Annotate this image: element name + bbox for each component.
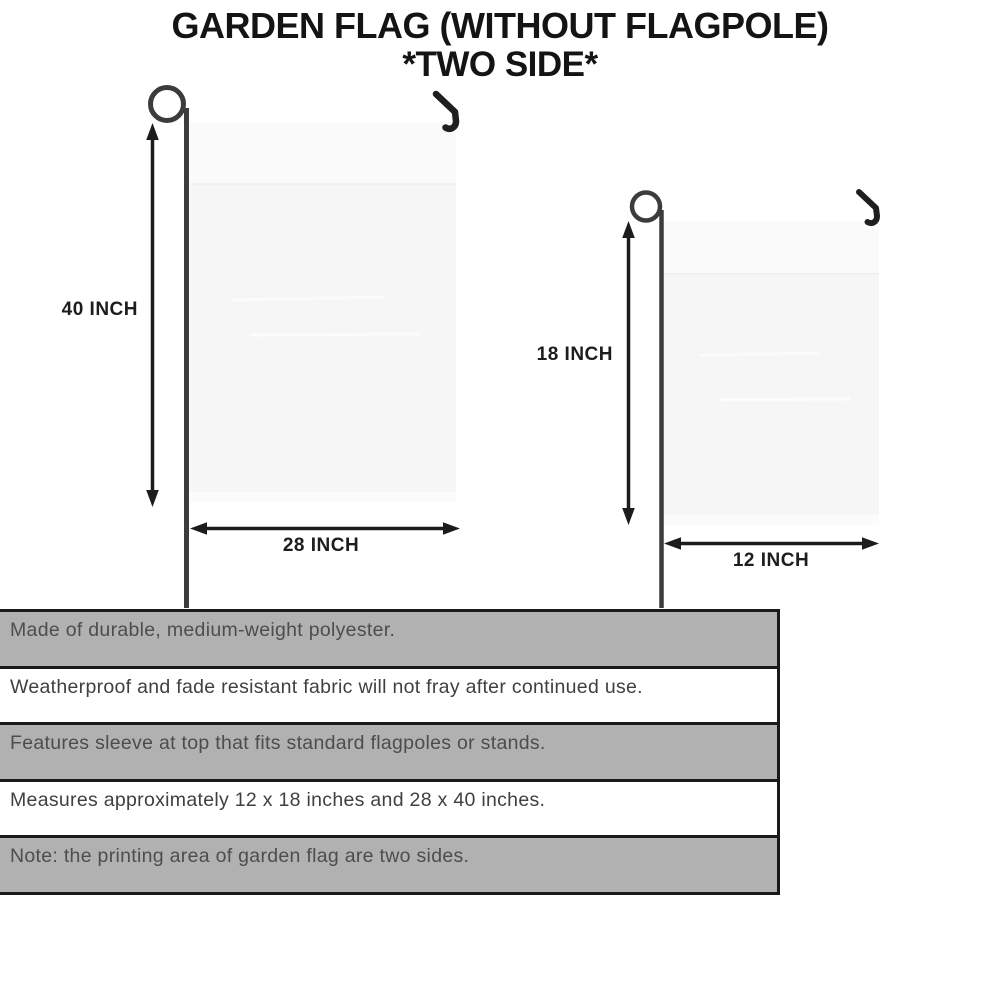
flag-small-sleeve (663, 222, 879, 274)
flag-large-bottom-hem (190, 492, 456, 503)
flag-small-bottom-hem (663, 515, 879, 525)
pole-hook-small-icon (859, 192, 877, 223)
width-arrow-large-icon (190, 522, 460, 535)
garden-flag-infographic: { "title": { "line1": "GARDEN FLAG (WITH… (0, 0, 1000, 1000)
width-arrow-small-icon (664, 537, 879, 550)
flagpole-small-icon (632, 193, 662, 609)
feature-row: Features sleeve at top that fits standar… (0, 725, 777, 782)
flag-small (663, 222, 879, 525)
height-label-large: 40 INCH (38, 300, 138, 320)
flagpole-large-icon (151, 88, 187, 609)
fabric-wrinkle (720, 399, 850, 400)
feature-row: Note: the printing area of garden flag a… (0, 838, 777, 895)
flag-large (190, 122, 456, 503)
flag-large-sleeve (190, 122, 456, 184)
fabric-wrinkle (700, 353, 820, 355)
feature-table: Made of durable, medium-weight polyester… (0, 609, 780, 895)
width-label-large: 28 INCH (226, 536, 416, 556)
height-arrow-small-icon (622, 221, 635, 525)
fabric-wrinkle (250, 334, 420, 335)
width-label-small: 12 INCH (676, 551, 866, 571)
height-label-small: 18 INCH (513, 345, 613, 365)
feature-row: Made of durable, medium-weight polyester… (0, 612, 777, 669)
feature-row: Measures approximately 12 x 18 inches an… (0, 782, 777, 839)
height-arrow-large-icon (146, 123, 159, 507)
feature-row: Weatherproof and fade resistant fabric w… (0, 669, 777, 726)
